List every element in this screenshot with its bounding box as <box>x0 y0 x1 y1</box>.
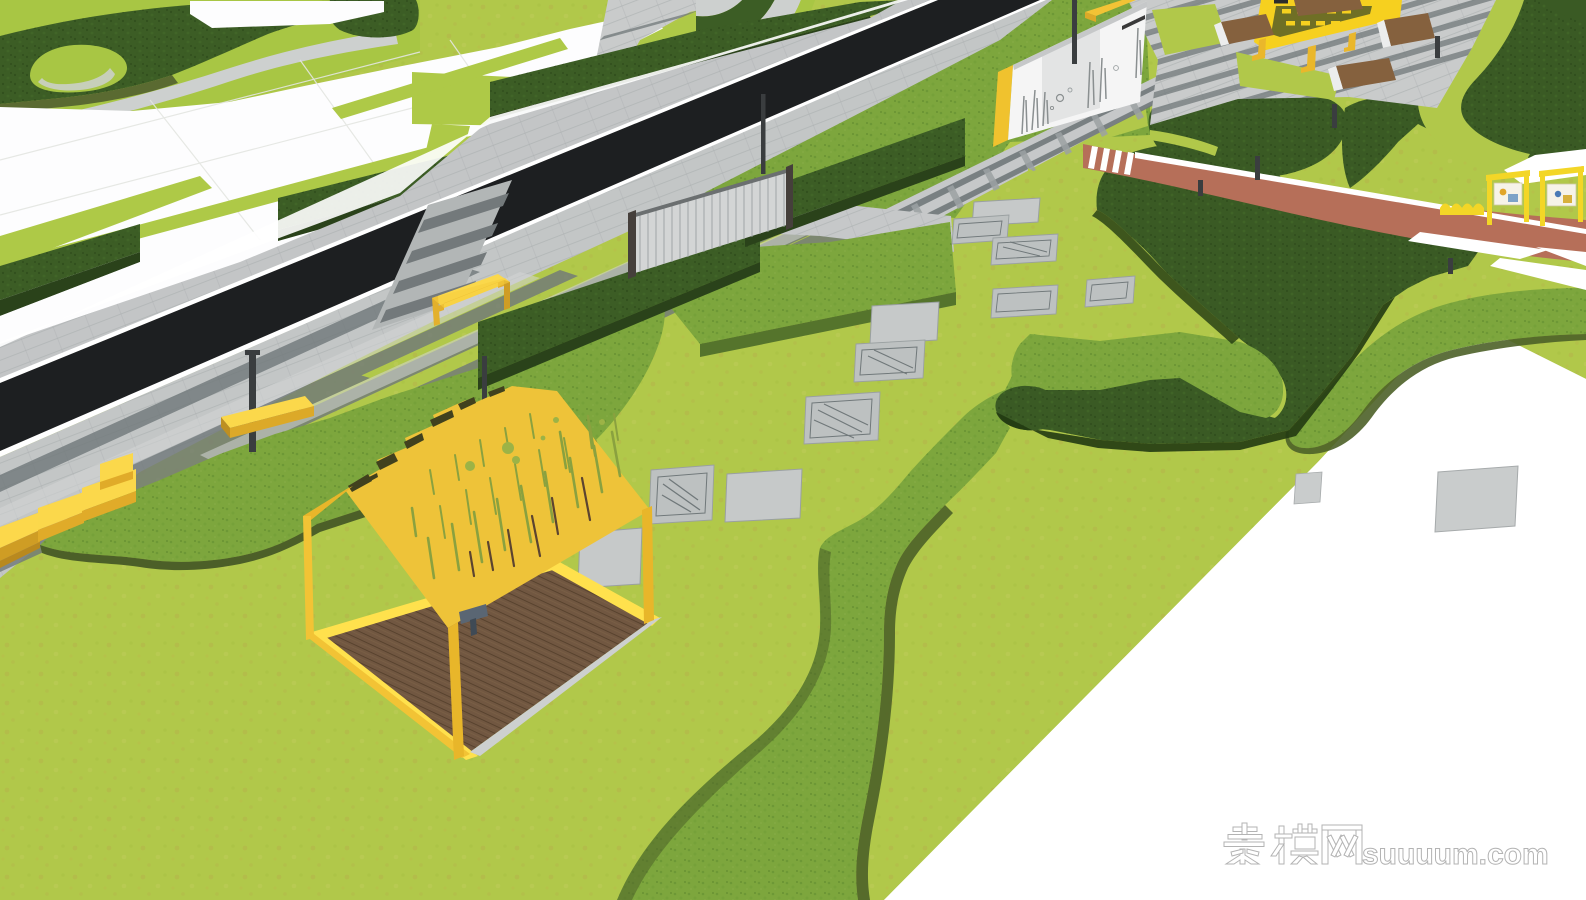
svg-text:suuuum.com: suuuum.com <box>1362 838 1549 871</box>
